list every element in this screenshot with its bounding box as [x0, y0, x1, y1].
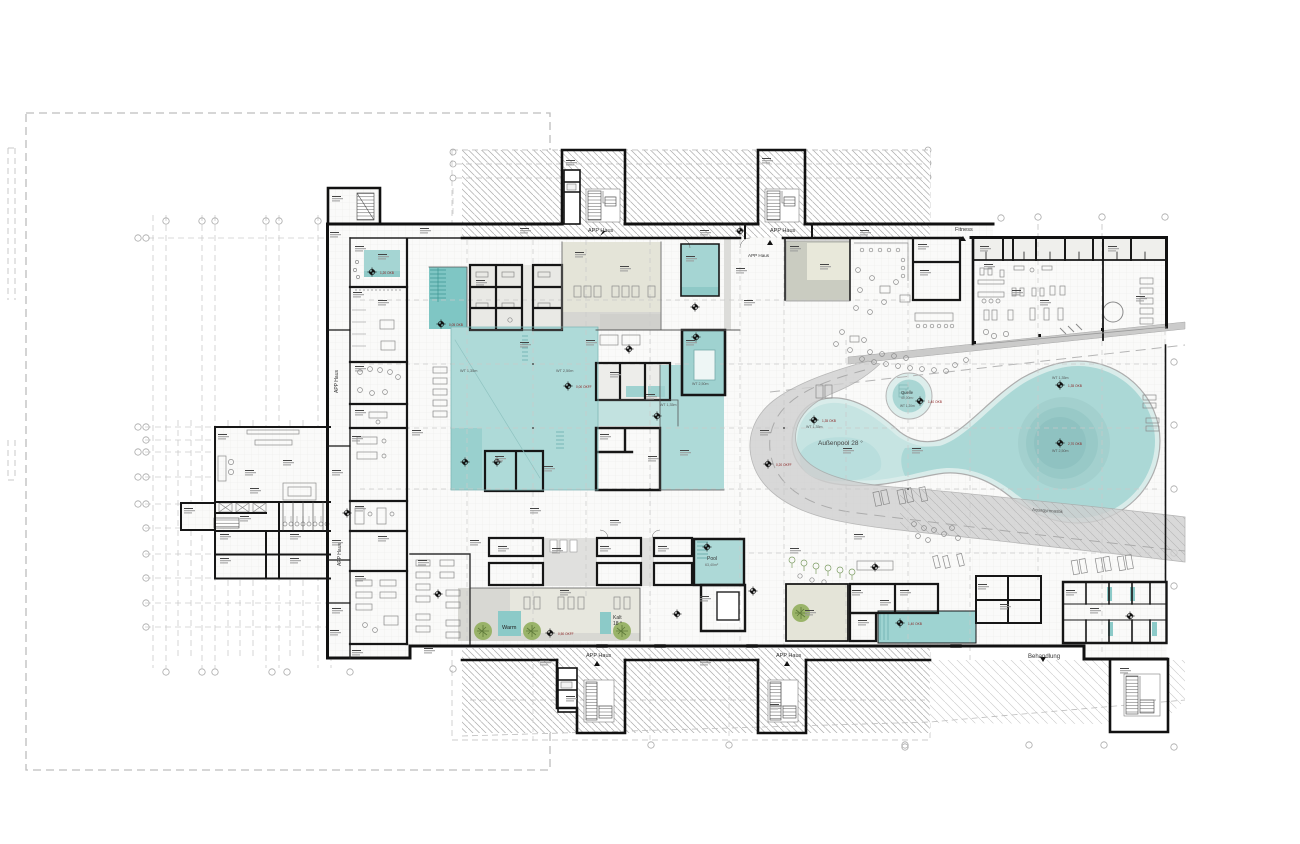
svg-text:WT 2,50m: WT 2,50m — [556, 369, 573, 373]
svg-text:APP Haus: APP Haus — [337, 543, 343, 566]
svg-text:63,40m²: 63,40m² — [705, 563, 719, 567]
svg-text:WT 1,35m: WT 1,35m — [460, 369, 477, 373]
svg-text:WT 2,50m: WT 2,50m — [1052, 449, 1069, 453]
svg-text:APP Haus: APP Haus — [748, 253, 770, 258]
svg-text:WT 1,35m: WT 1,35m — [1052, 376, 1069, 380]
svg-text:Pool: Pool — [707, 556, 717, 562]
svg-text:APP Haus: APP Haus — [586, 653, 612, 659]
svg-text:2,70 OKB: 2,70 OKB — [1068, 442, 1082, 446]
svg-text:APP Haus: APP Haus — [588, 228, 614, 234]
svg-text:1,35 OKB: 1,35 OKB — [1068, 384, 1082, 388]
svg-text:Behandlung: Behandlung — [1028, 654, 1060, 660]
svg-text:1,40 OKB: 1,40 OKB — [908, 622, 922, 626]
svg-text:0,50 OKFF: 0,50 OKFF — [558, 632, 574, 636]
svg-text:40,00m²: 40,00m² — [901, 396, 914, 400]
svg-text:0,20 OKFF: 0,20 OKFF — [776, 463, 792, 467]
svg-text:Außenpool 28 °: Außenpool 28 ° — [818, 439, 863, 447]
svg-text:Fitness: Fitness — [955, 227, 973, 233]
svg-text:Quelle: Quelle — [901, 390, 914, 395]
svg-text:WT 1,20m: WT 1,20m — [900, 404, 915, 408]
svg-text:1,40 OKB: 1,40 OKB — [928, 400, 942, 404]
svg-text:0,00 OKFF: 0,00 OKFF — [576, 385, 592, 389]
svg-text:1,20 OKB: 1,20 OKB — [380, 271, 394, 275]
svg-text:Warm: Warm — [502, 625, 517, 631]
svg-text:APP Haus: APP Haus — [770, 228, 796, 234]
svg-text:WT 1,35m: WT 1,35m — [660, 403, 677, 407]
svg-text:0,05 OKB: 0,05 OKB — [449, 323, 463, 327]
svg-text:1,35 OKB: 1,35 OKB — [822, 419, 836, 423]
svg-text:WT 1,35m: WT 1,35m — [806, 425, 823, 429]
svg-text:18 °: 18 ° — [613, 621, 622, 627]
svg-text:WT 2,50m: WT 2,50m — [692, 382, 709, 386]
svg-text:APP Haus: APP Haus — [334, 370, 340, 393]
svg-text:APP Haus: APP Haus — [776, 653, 802, 659]
